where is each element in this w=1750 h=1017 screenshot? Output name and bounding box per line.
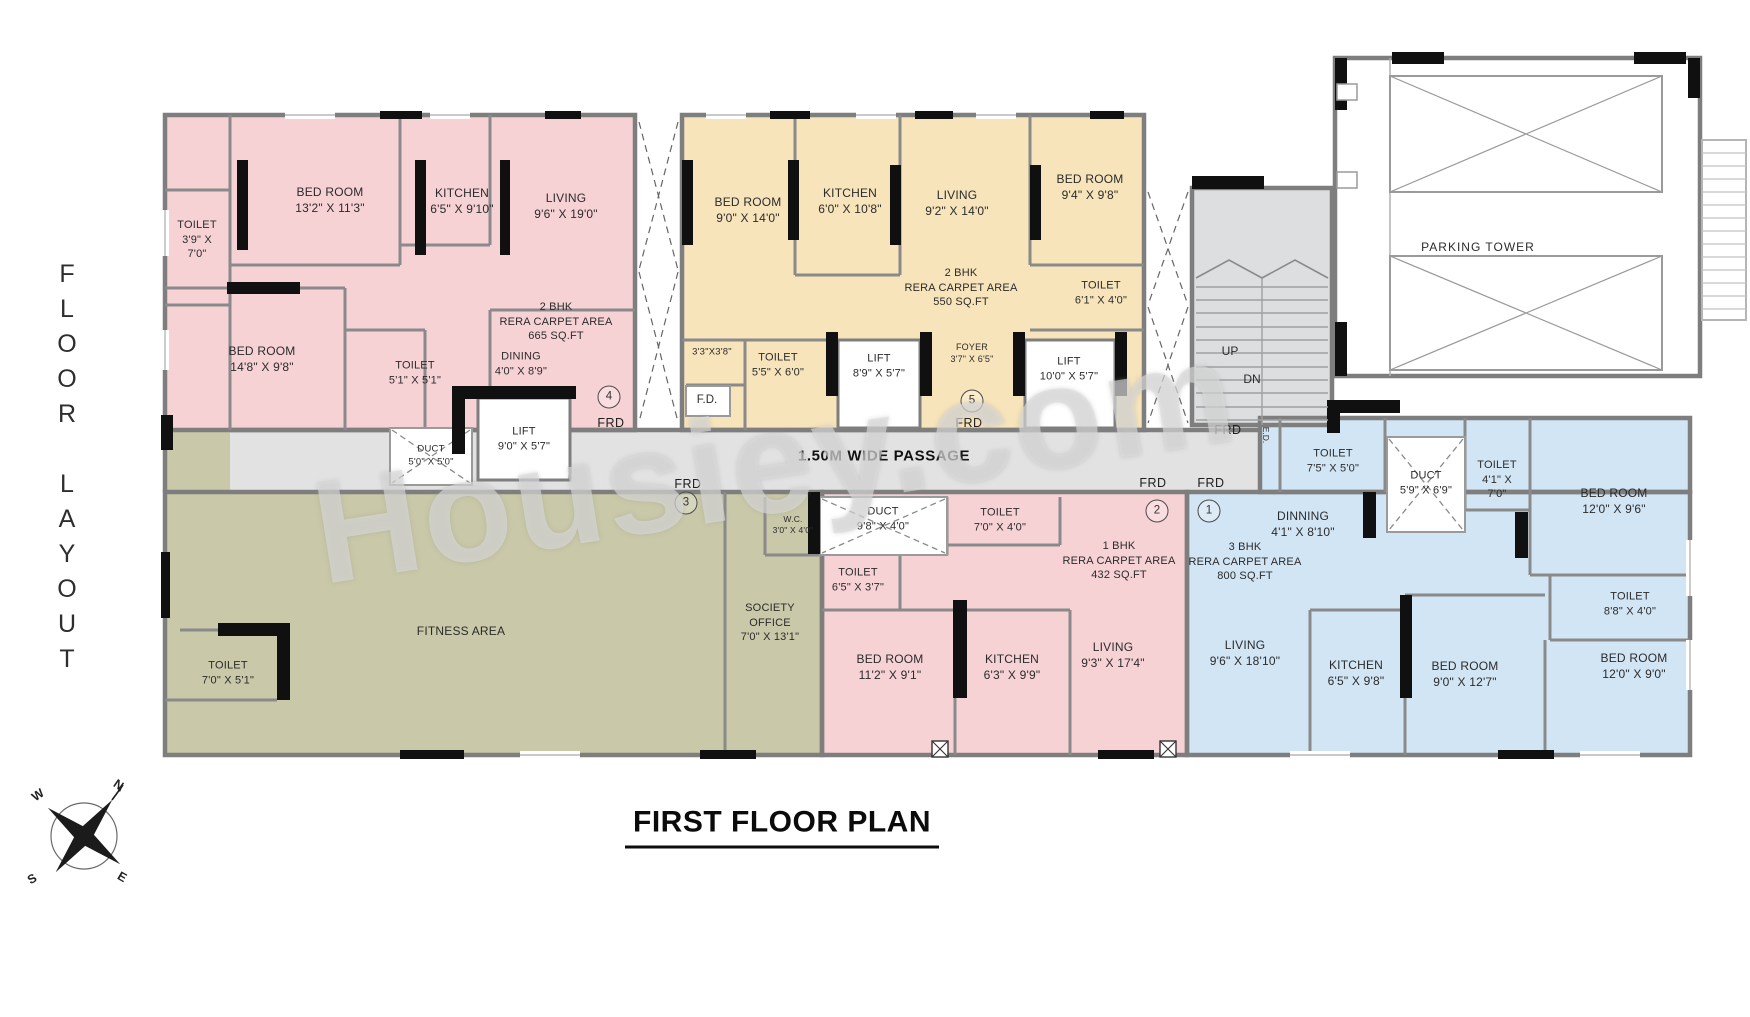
room-label-bed-room: BED ROOM14'8" X 9'8" (229, 344, 296, 376)
page-title: FIRST FLOOR PLAN (625, 806, 939, 849)
room-label-bed-room: BED ROOM13'2" X 11'3" (295, 185, 365, 217)
room-label-3-bhk: 3 BHKRERA CARPET AREA800 SQ.FT (1188, 540, 1301, 584)
unit-number-badge-1: 1 (1198, 500, 1221, 523)
room-label-dining: DINING4'0" X 8'9" (495, 349, 547, 378)
room-label-toilet: TOILET4'1" X7'0" (1477, 458, 1517, 502)
compass-rose: N W S E (26, 778, 144, 896)
room-label-toilet: TOILET6'5" X 3'7" (832, 565, 884, 594)
unit-number-badge-2: 2 (1146, 500, 1169, 523)
room-label-duct: DUCT5'9" X 6'9" (1400, 468, 1452, 497)
room-label-kitchen: KITCHEN6'3" X 9'9" (984, 652, 1041, 684)
room-label-bed-room: BED ROOM11'2" X 9'1" (857, 652, 924, 684)
room-label-toilet: TOILET6'1" X 4'0" (1075, 278, 1127, 307)
room-label-kitchen: KITCHEN6'0" X 10'8" (818, 186, 882, 218)
room-label-fitness-area: FITNESS AREA (417, 624, 505, 640)
misc-label-dn: DN (1243, 372, 1260, 386)
room-label-2-bhk: 2 BHKRERA CARPET AREA550 SQ.FT (904, 266, 1017, 310)
room-label-kitchen: KITCHEN6'5" X 9'8" (1328, 658, 1385, 690)
room-label-living: LIVING9'3" X 17'4" (1081, 640, 1145, 672)
room-label-living: LIVING9'6" X 18'10" (1210, 638, 1280, 670)
room-label-kitchen: KITCHEN6'5" X 9'10" (430, 186, 494, 218)
room-label-1-bhk: 1 BHKRERA CARPET AREA432 SQ.FT (1062, 539, 1175, 583)
room-label-bed-room: BED ROOM9'4" X 9'8" (1057, 172, 1124, 204)
floor-plan-page: FLOOR LAYOUT TOILET3'9" X7'0"BED ROOM13'… (0, 0, 1750, 1017)
room-label-living: LIVING9'2" X 14'0" (925, 188, 989, 220)
room-label-bed-room: BED ROOM12'0" X 9'0" (1601, 651, 1668, 683)
room-label-society: SOCIETYOFFICE7'0" X 13'1" (741, 601, 799, 645)
room-label-toilet: TOILET5'1" X 5'1" (389, 358, 441, 387)
room-label-2-bhk: 2 BHKRERA CARPET AREA665 SQ.FT (499, 300, 612, 344)
room-label-toilet: TOILET8'8" X 4'0" (1604, 589, 1656, 618)
room-label-bed-room: BED ROOM9'0" X 12'7" (1432, 659, 1499, 691)
room-label-3-3-x3-8-: 3'3"X3'8" (692, 347, 732, 360)
misc-label-parking-tower: PARKING TOWER (1421, 240, 1535, 254)
misc-label-e-d-: E.D. (1261, 427, 1271, 444)
room-label-dinning: DINNING4'1" X 8'10" (1271, 509, 1335, 541)
room-label-bed-room: BED ROOM9'0" X 14'0" (715, 195, 782, 227)
room-label-toilet: TOILET7'5" X 5'0" (1307, 446, 1359, 475)
room-label-toilet: TOILET3'9" X7'0" (177, 218, 217, 262)
room-label-toilet: TOILET7'0" X 5'1" (202, 658, 254, 687)
room-label-living: LIVING9'6" X 19'0" (534, 191, 598, 223)
room-label-bed-room: BED ROOM12'0" X 9'6" (1581, 486, 1648, 518)
